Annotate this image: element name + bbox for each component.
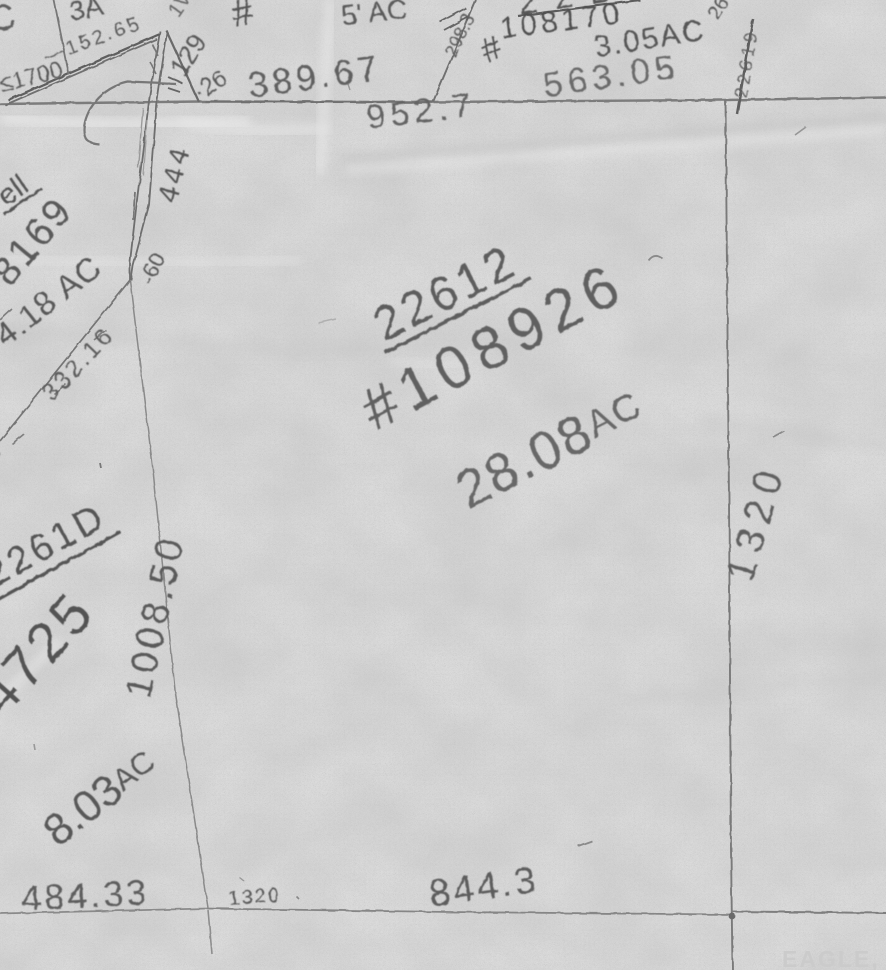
svg-text:484.33: 484.33 bbox=[20, 871, 150, 919]
svg-text:1320: 1320 bbox=[228, 884, 282, 910]
svg-text:EAGLE, IL: EAGLE, IL bbox=[782, 946, 886, 970]
